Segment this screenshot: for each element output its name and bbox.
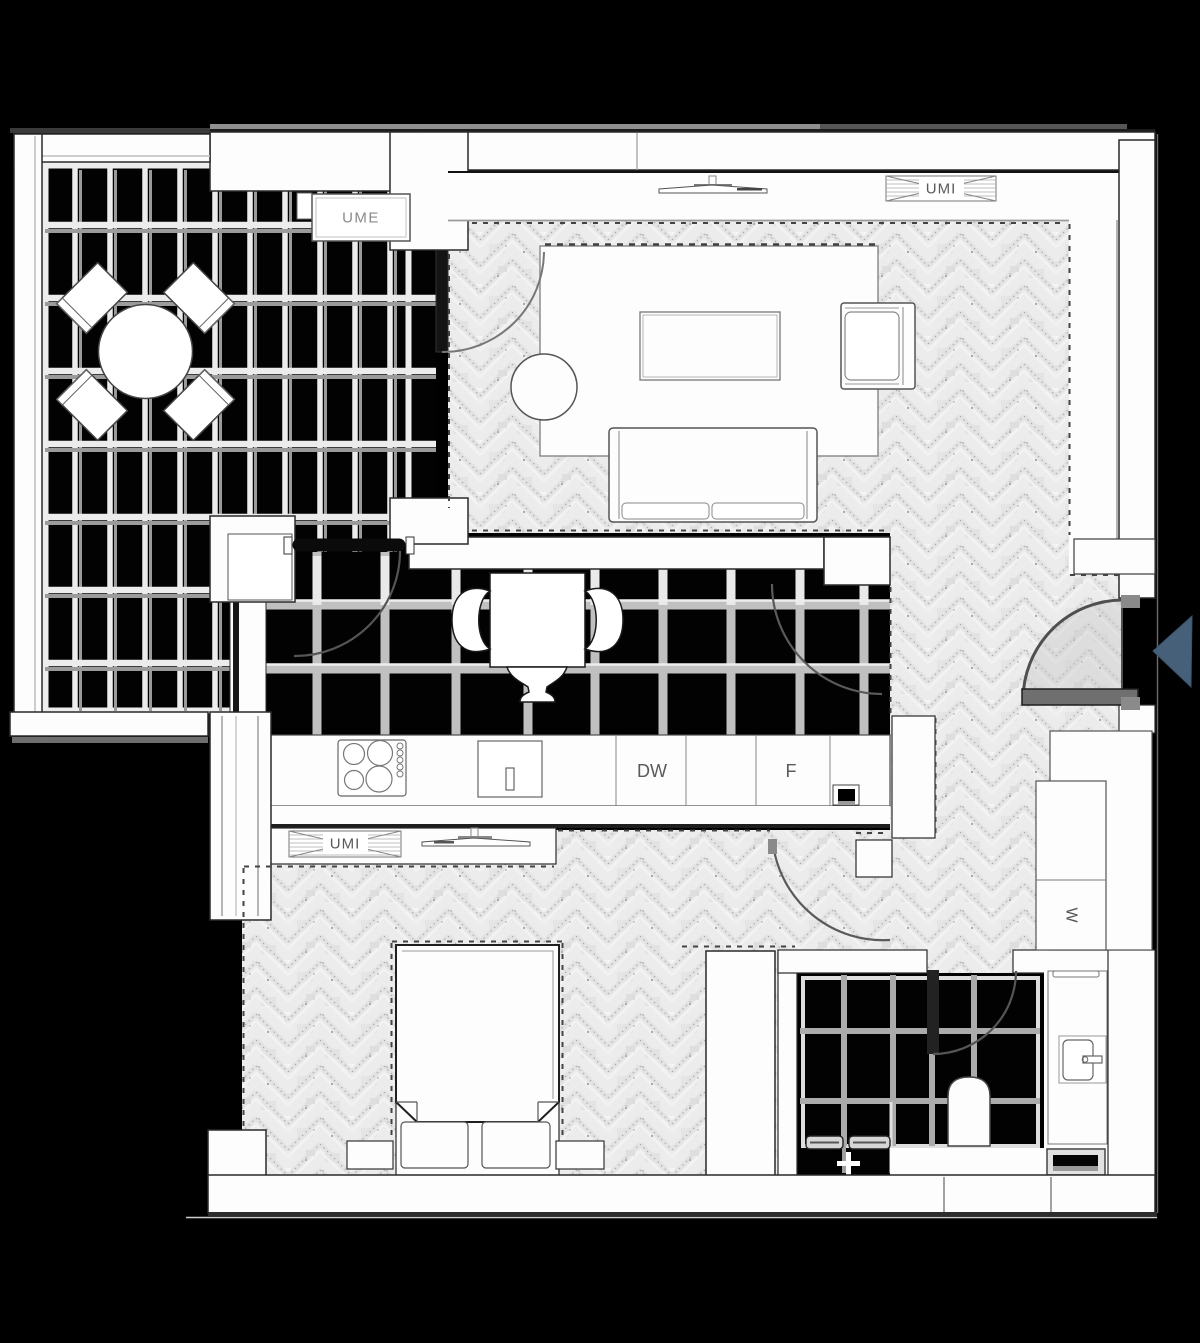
svg-text:UMI: UMI (330, 836, 361, 853)
svg-text:UME: UME (342, 210, 380, 227)
svg-text:W: W (1063, 907, 1080, 923)
svg-text:DW: DW (637, 761, 667, 781)
svg-text:UMI: UMI (926, 181, 957, 198)
svg-text:F: F (786, 761, 797, 781)
